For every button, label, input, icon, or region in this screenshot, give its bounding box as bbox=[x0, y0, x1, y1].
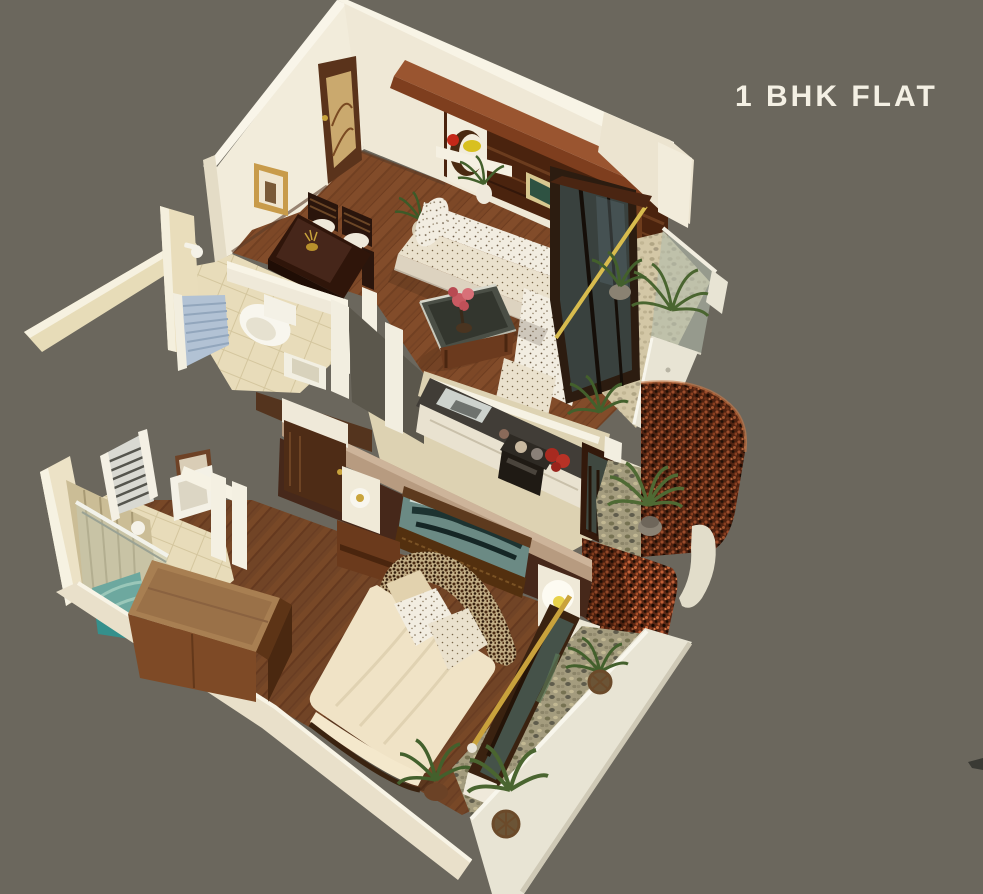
svg-text:1 BHK FLAT: 1 BHK FLAT bbox=[735, 80, 938, 113]
